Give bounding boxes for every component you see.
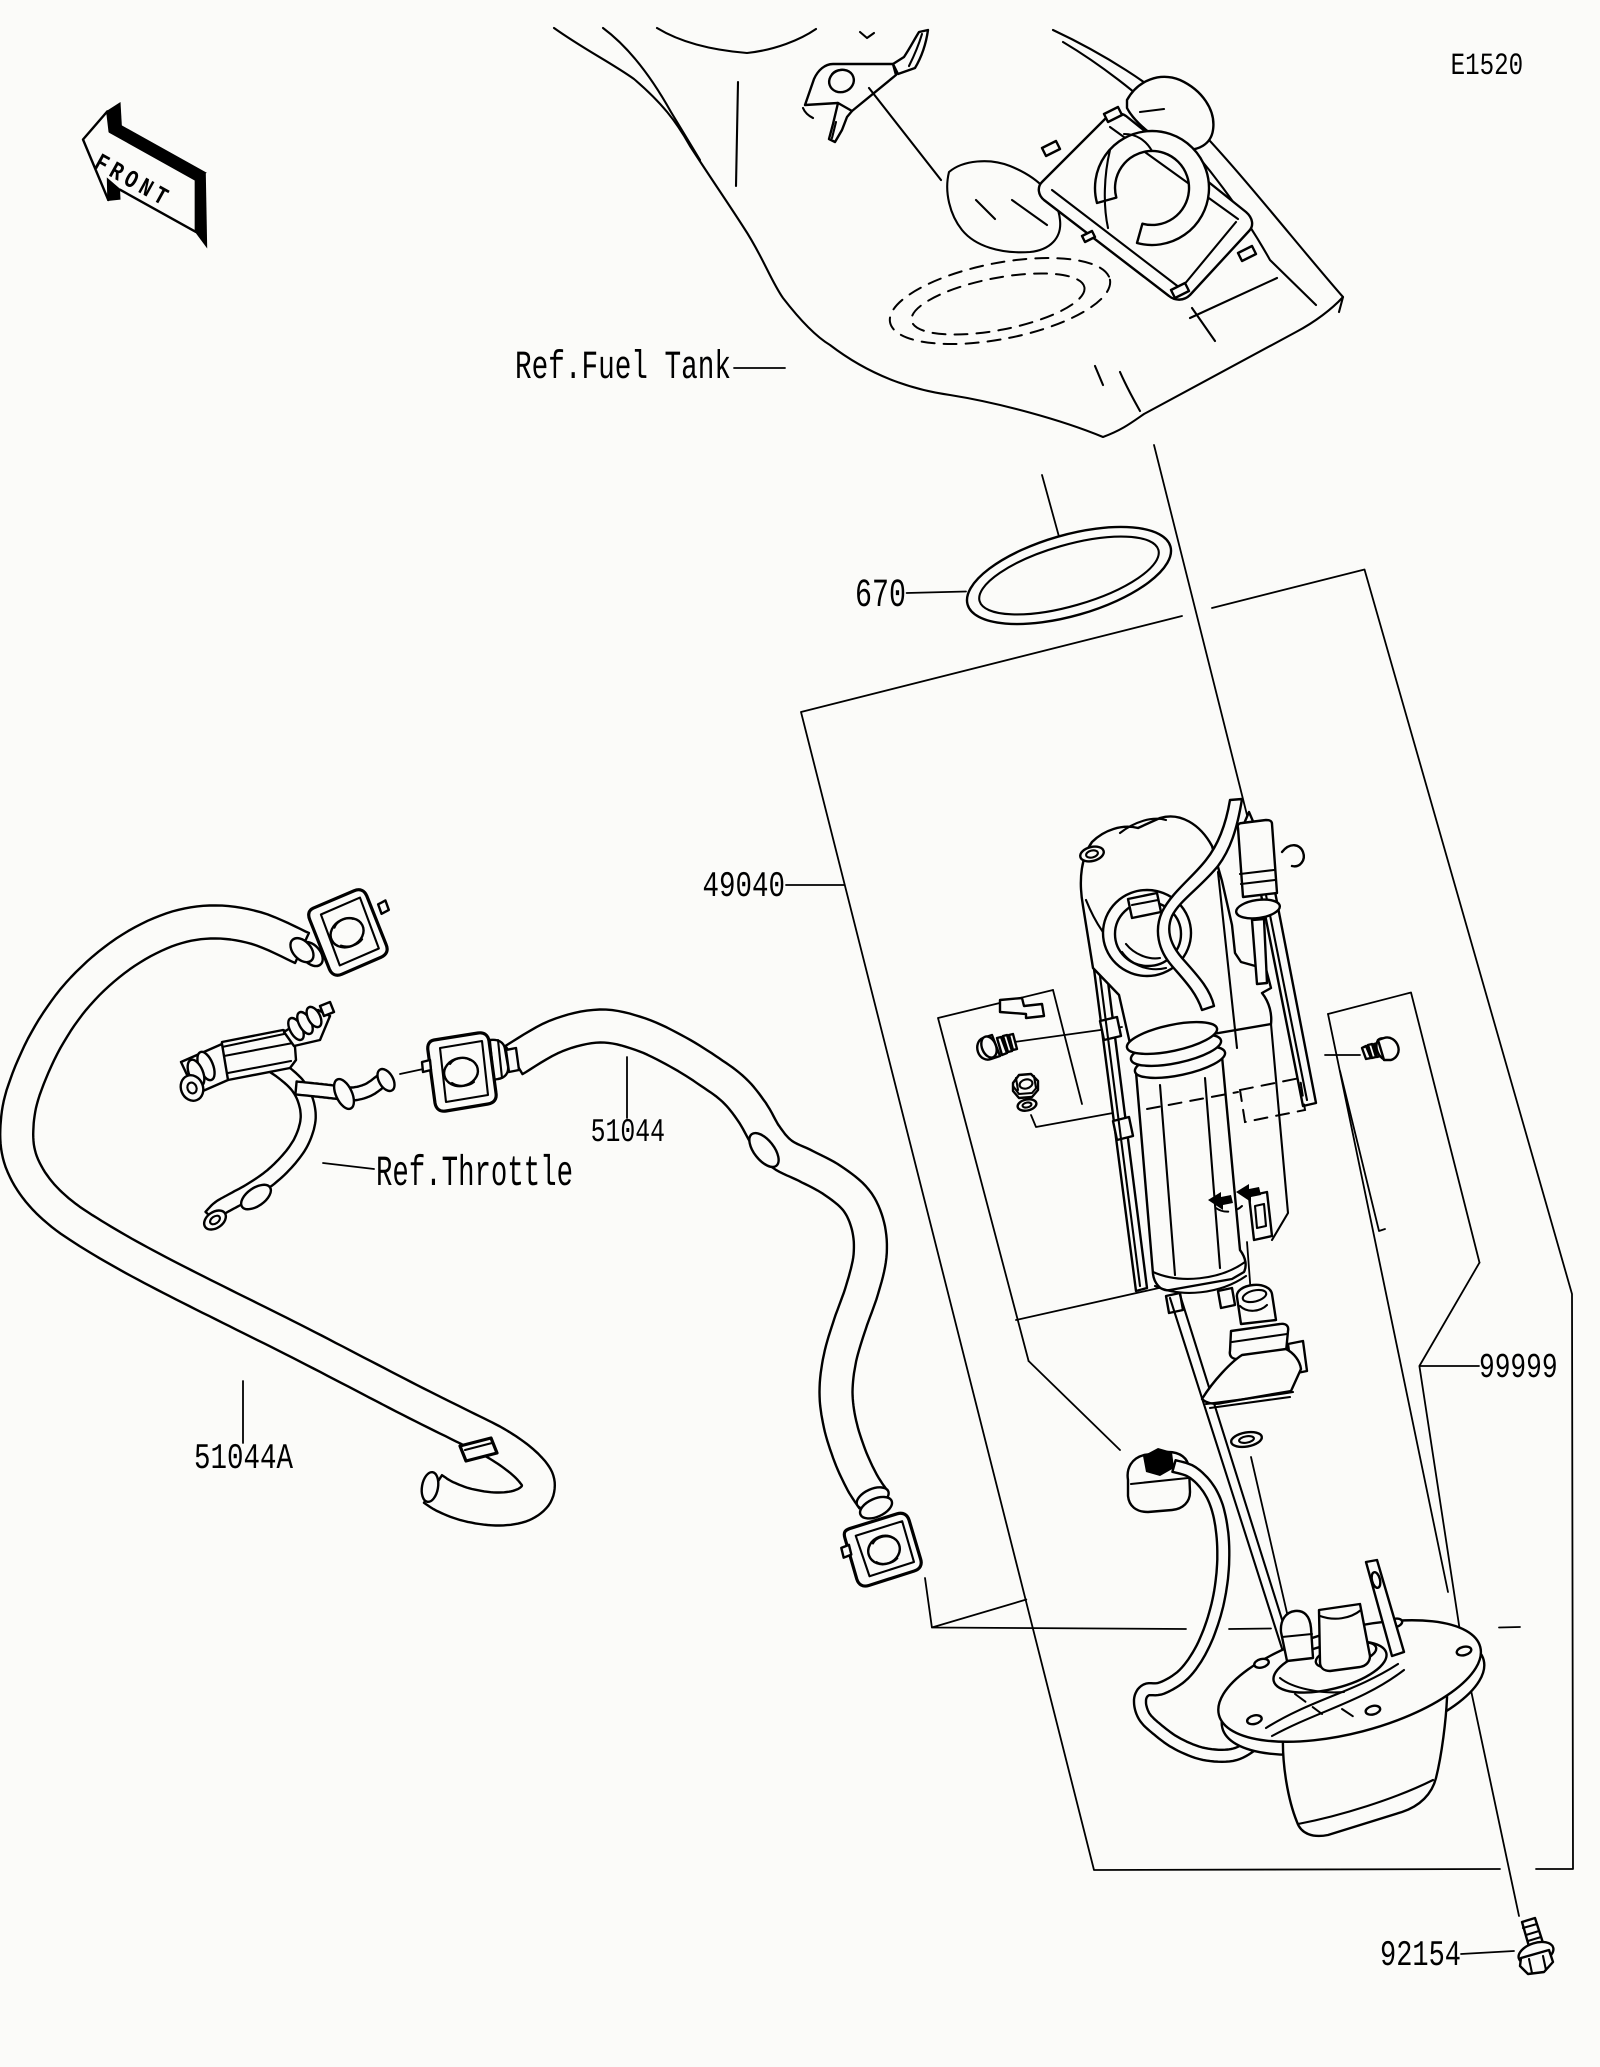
svg-text:Ref.Throttle: Ref.Throttle [376,1149,573,1198]
svg-text:51044A: 51044A [194,1438,293,1479]
svg-text:E1520: E1520 [1451,49,1524,84]
svg-text:670: 670 [855,574,906,619]
svg-text:49040: 49040 [703,866,786,907]
svg-text:99999: 99999 [1479,1348,1558,1388]
svg-text:Ref.Fuel Tank: Ref.Fuel Tank [515,346,731,391]
svg-text:92154: 92154 [1380,1935,1461,1976]
svg-text:51044: 51044 [591,1114,665,1151]
